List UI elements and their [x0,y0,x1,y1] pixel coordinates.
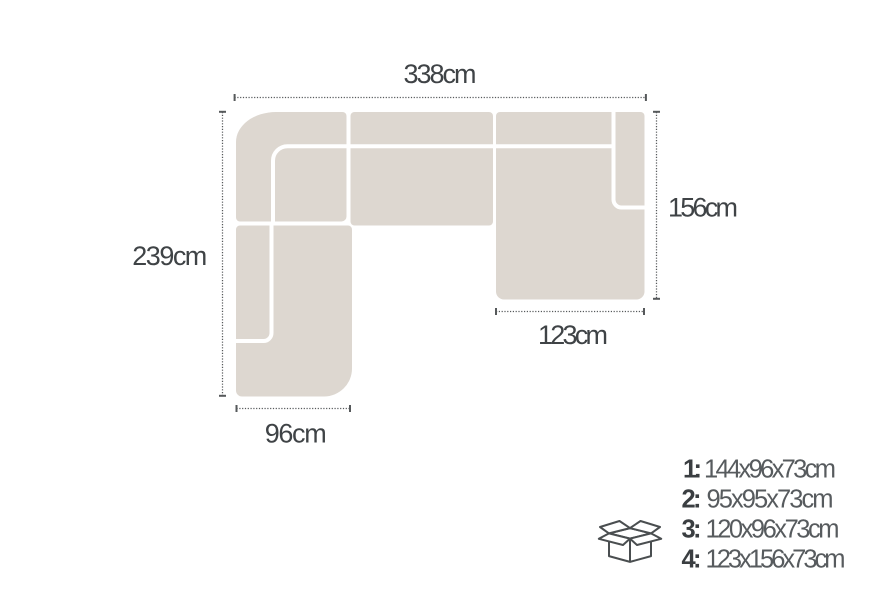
svg-text:123cm: 123cm [538,320,608,350]
svg-text:123x156x73cm: 123x156x73cm [706,546,846,574]
svg-text:1:: 1: [683,455,702,483]
svg-text:156cm: 156cm [668,193,738,223]
svg-text:3:: 3: [682,516,702,544]
svg-text:239cm: 239cm [132,241,207,271]
svg-text:96cm: 96cm [265,419,327,449]
svg-text:4:: 4: [682,546,702,574]
svg-text:2:: 2: [682,485,702,513]
svg-text:338cm: 338cm [404,59,477,89]
svg-text:95x95x73cm: 95x95x73cm [707,485,834,513]
svg-text:144x96x73cm: 144x96x73cm [704,455,836,483]
svg-text:120x96x73cm: 120x96x73cm [706,516,840,544]
